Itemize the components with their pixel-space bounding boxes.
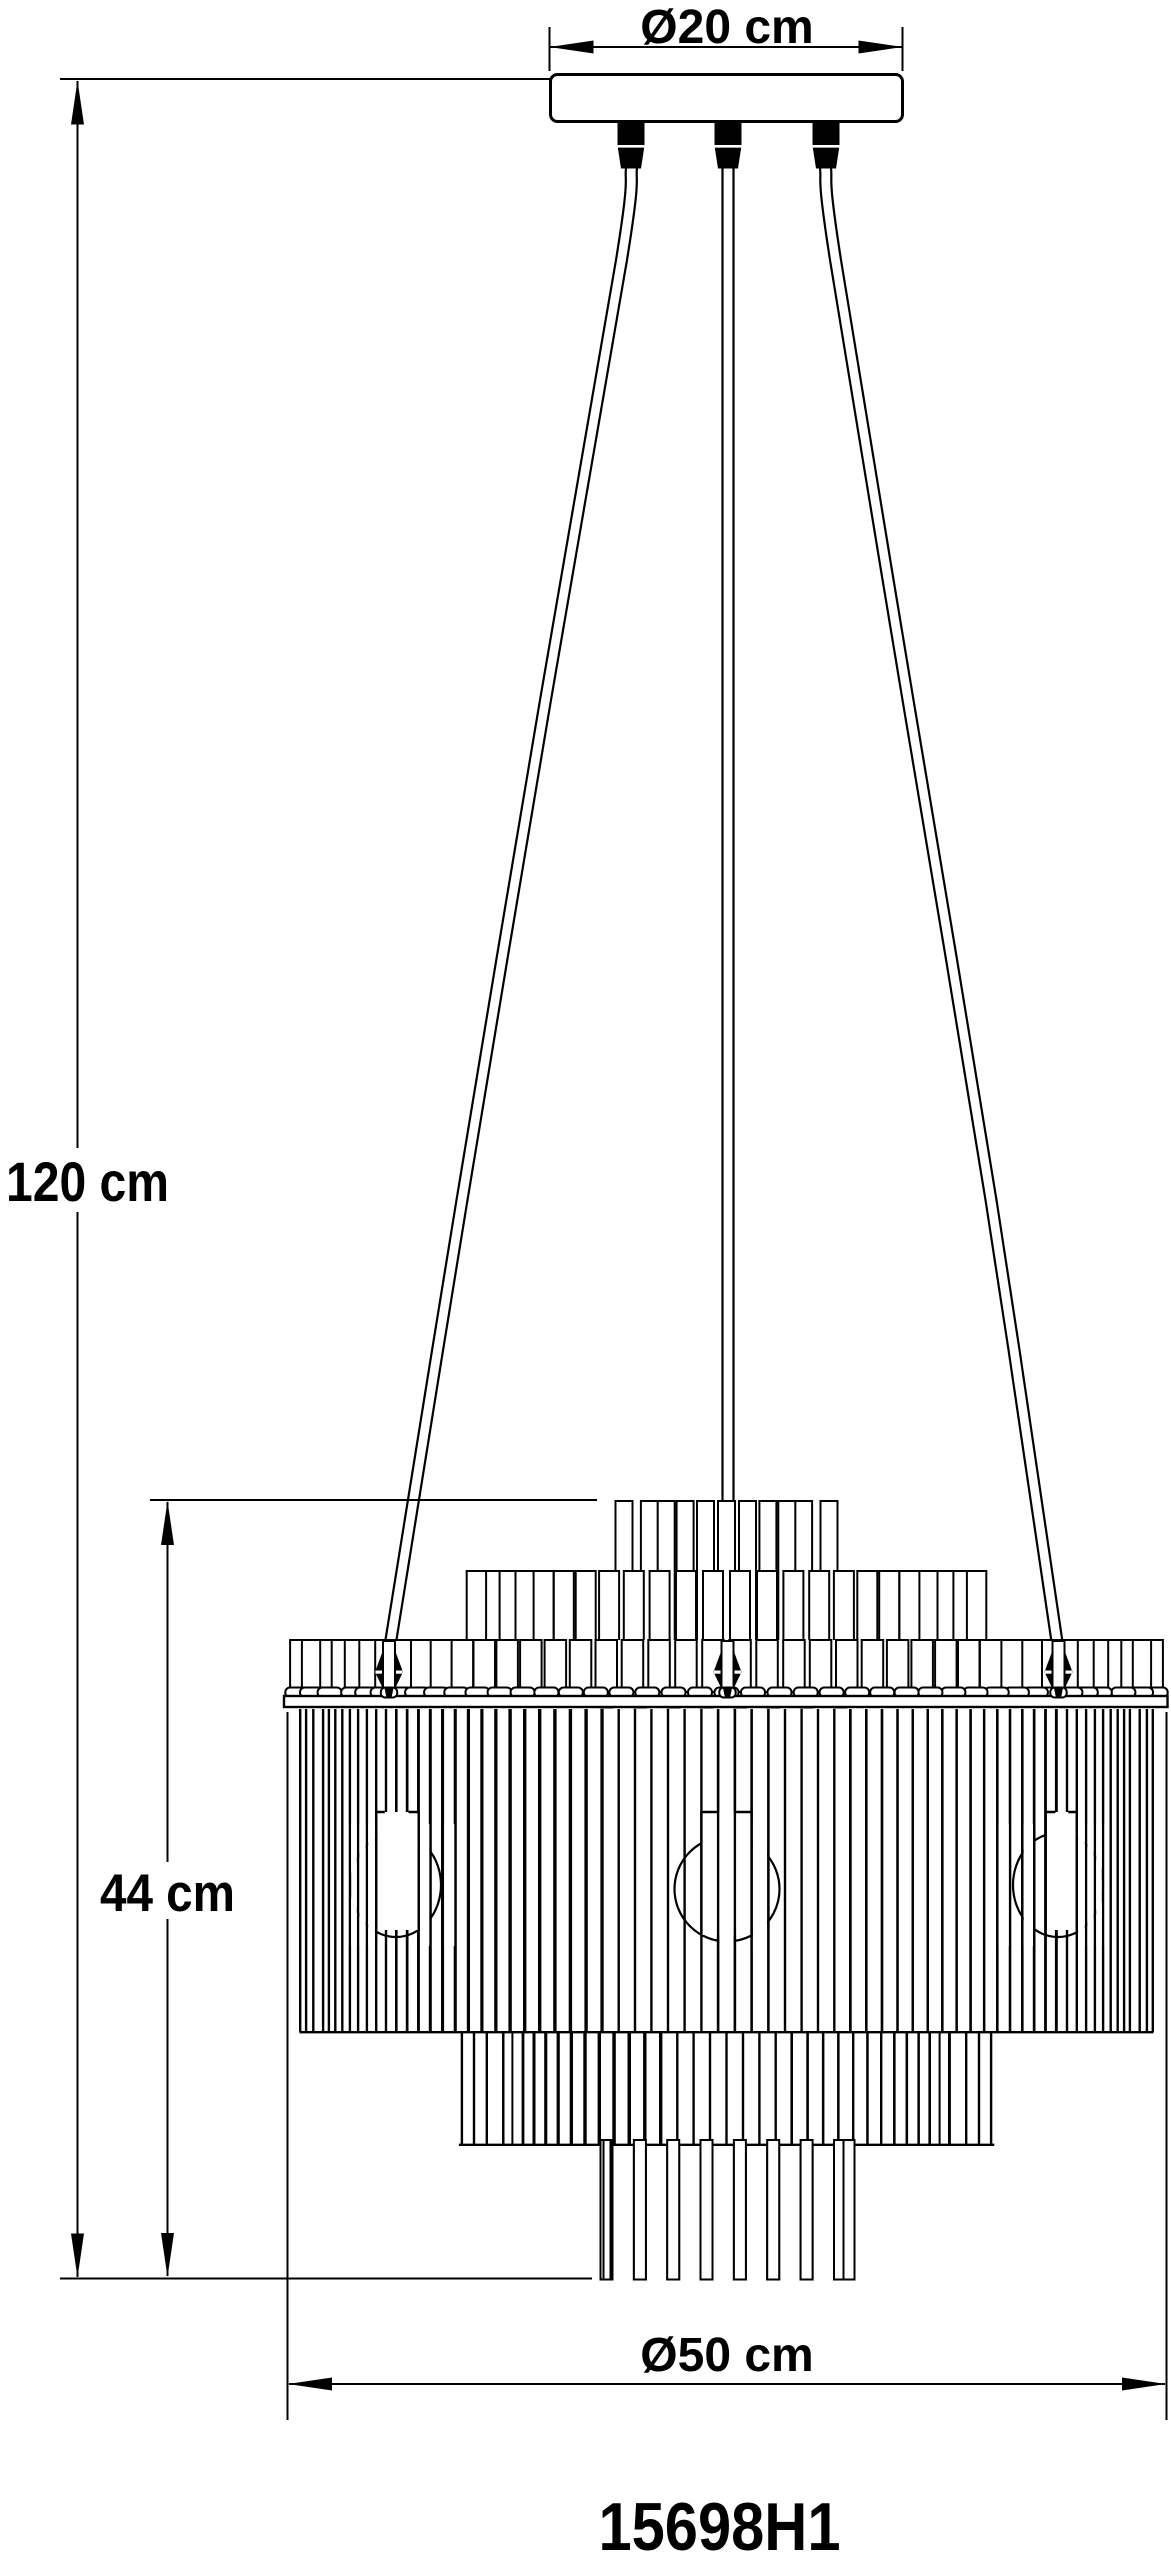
svg-text:15698H1: 15698H1 [599,2489,841,2560]
svg-text:120 cm: 120 cm [6,1150,169,1213]
svg-text:Ø50 cm: Ø50 cm [640,2329,813,2382]
svg-text:Ø20 cm: Ø20 cm [640,1,813,54]
svg-text:44 cm: 44 cm [100,1864,235,1923]
